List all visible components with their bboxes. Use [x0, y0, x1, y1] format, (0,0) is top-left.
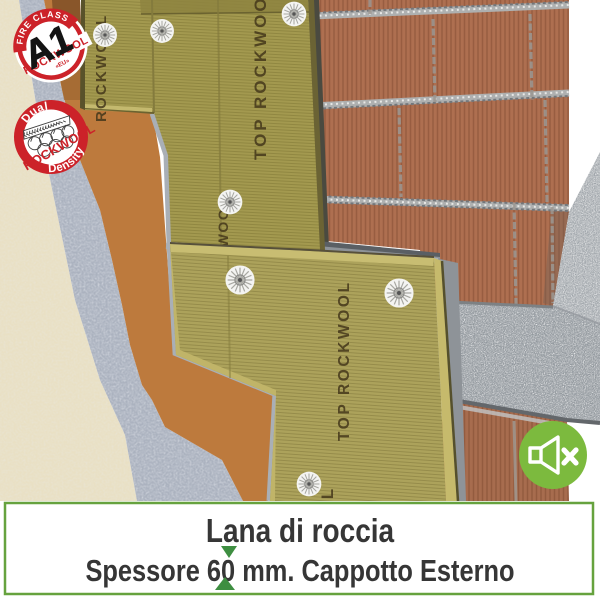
svg-text:TOP ROCKWOOL: TOP ROCKWOOL — [336, 280, 353, 441]
svg-text:Lana di roccia: Lana di roccia — [206, 513, 395, 550]
svg-text:TOP ROCKWOOL: TOP ROCKWOOL — [251, 0, 270, 160]
svg-text:Spessore 60 mm. Cappotto Ester: Spessore 60 mm. Cappotto Esterno — [85, 554, 514, 589]
